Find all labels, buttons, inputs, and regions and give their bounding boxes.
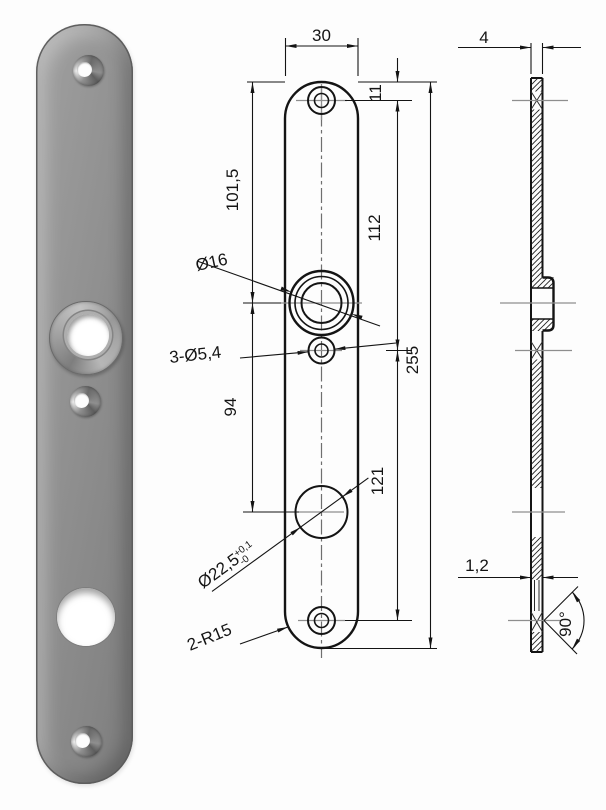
dim-screw-spacing-top: 112 <box>365 214 384 241</box>
label-big-hole-diameter-group: Ø22,5 +0,1 -0 <box>194 538 260 595</box>
dim-width: 30 <box>312 26 331 45</box>
dim-boss-to-big-hole: 94 <box>221 398 240 417</box>
dim-sheet-thickness: 1,2 <box>465 556 489 575</box>
dim-boss-center: 101,5 <box>223 169 242 212</box>
dim-countersink-angle: 90° <box>556 611 575 637</box>
side-bottom-screw-countersink <box>531 580 543 632</box>
dim-top-hole-offset: 11 <box>366 84 385 102</box>
dim-overall-thickness: 4 <box>479 28 488 47</box>
label-end-radius: 2-R15 <box>184 620 234 655</box>
front-top-screw-hole <box>296 84 347 120</box>
side-view: 4 1,2 90° <box>458 28 584 654</box>
front-view: 30 11 112 121 255 101,5 94 Ø16 3-Ø5,4 Ø2… <box>168 26 437 658</box>
dim-total-length: 255 <box>403 346 422 374</box>
technical-drawing-page: 30 11 112 121 255 101,5 94 Ø16 3-Ø5,4 Ø2… <box>0 0 606 810</box>
label-screw-holes: 3-Ø5,4 <box>168 343 222 367</box>
dim-screw-spacing-bottom: 121 <box>368 467 387 495</box>
drawing-svg: 30 11 112 121 255 101,5 94 Ø16 3-Ø5,4 Ø2… <box>0 0 606 810</box>
